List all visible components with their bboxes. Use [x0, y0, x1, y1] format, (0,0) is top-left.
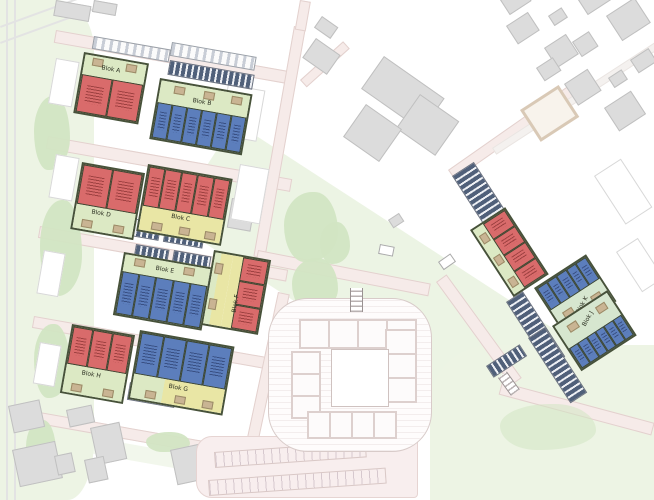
porch [70, 383, 82, 393]
unit-annotation-marks [155, 288, 168, 311]
unit-annotation-marks [164, 348, 180, 371]
porch [595, 302, 609, 315]
porch [102, 388, 114, 398]
existing-building [606, 0, 651, 41]
unit-annotation-marks [73, 337, 87, 357]
unit-annotation-marks [189, 294, 202, 317]
parcel [616, 238, 654, 292]
housing-block-a: Blok A [73, 52, 149, 125]
porch [178, 226, 190, 236]
unit-annotation-marks [85, 175, 105, 197]
block-label: Blok D [91, 209, 111, 218]
unit-annotation-marks [237, 312, 253, 326]
porch [81, 219, 93, 229]
building-rooms [291, 351, 321, 419]
porch [493, 254, 505, 267]
porch [173, 86, 185, 96]
tree-cluster [320, 222, 350, 264]
block-label: Blok A [101, 65, 121, 74]
unit-annotation-marks [231, 125, 242, 144]
porch [134, 258, 146, 268]
porch [214, 263, 224, 275]
block-label: Blok E [155, 266, 174, 275]
existing-building [604, 91, 646, 132]
courtyard [331, 349, 389, 407]
porch [125, 64, 137, 74]
parcel [594, 159, 652, 225]
existing-building [302, 38, 340, 75]
unit-annotation-marks [121, 282, 134, 305]
unit-annotation-marks [197, 186, 209, 207]
unit-annotation-marks [157, 112, 168, 131]
housing-block-h: Blok H [60, 324, 135, 404]
unit-annotation-marks [113, 344, 127, 364]
unit-annotation-marks [522, 265, 539, 280]
existing-building [578, 0, 613, 15]
unit-annotation-marks [114, 181, 134, 203]
housing-block-d: Blok D [70, 162, 145, 240]
unit-annotation-marks [141, 344, 157, 367]
block-label: Blok B [192, 98, 212, 107]
porch [507, 275, 519, 288]
unit-annotation-marks [618, 321, 628, 333]
road-edge-line [6, 0, 8, 500]
stairs [350, 288, 363, 312]
unit-annotation-marks [181, 183, 193, 204]
porch [112, 224, 124, 234]
porch [151, 222, 163, 232]
unit-annotation-marks [213, 188, 225, 209]
porch [144, 390, 156, 400]
unit-annotation-marks [246, 264, 262, 278]
housing-unit [106, 170, 142, 215]
unit-annotation-marks [172, 291, 185, 314]
central-courtyard-building [268, 298, 432, 452]
unit-annotation-marks [186, 117, 197, 136]
unit-annotation-marks [93, 340, 107, 360]
unit-annotation-marks [501, 233, 518, 248]
block-label: Blok H [81, 370, 101, 379]
porch [204, 231, 216, 241]
existing-building [506, 12, 540, 45]
unit-annotation-marks [216, 122, 227, 141]
building-rooms [385, 329, 417, 403]
unit-annotation-marks [187, 352, 203, 375]
porch [174, 395, 186, 405]
unit-annotation-marks [242, 288, 258, 302]
building-rooms [307, 411, 397, 439]
unit-annotation-marks [201, 119, 212, 138]
unit-annotation-marks [84, 85, 104, 106]
block-label: Blok G [168, 384, 188, 393]
porch [479, 232, 491, 245]
existing-building [54, 452, 76, 475]
unit-annotation-marks [114, 90, 134, 111]
housing-block-c: Blok C [136, 164, 233, 246]
existing-building [630, 48, 654, 73]
unit-annotation-marks [164, 180, 176, 201]
unit-annotation-marks [138, 285, 151, 308]
site-plan: Blok A Blok B Blok D Blok C [0, 0, 654, 500]
unit-annotation-marks [490, 217, 507, 232]
unit-annotation-marks [511, 249, 528, 264]
unit-annotation-marks [171, 114, 182, 133]
porch [231, 96, 243, 106]
existing-building [92, 0, 118, 16]
existing-building [548, 7, 568, 26]
tree-cluster [500, 404, 596, 450]
housing-unit [106, 79, 143, 122]
porch [208, 298, 218, 310]
porch [566, 320, 580, 333]
porch [201, 400, 213, 410]
unit-annotation-marks [148, 177, 160, 198]
unit-annotation-marks [582, 264, 594, 278]
housing-block-f: Blok F [201, 250, 271, 335]
existing-building [343, 104, 402, 162]
street [295, 0, 311, 31]
porch [183, 267, 195, 277]
existing-building [314, 16, 338, 39]
block-label: Blok C [171, 214, 191, 223]
unit-annotation-marks [209, 356, 225, 379]
block-label: Blok J [582, 310, 595, 327]
